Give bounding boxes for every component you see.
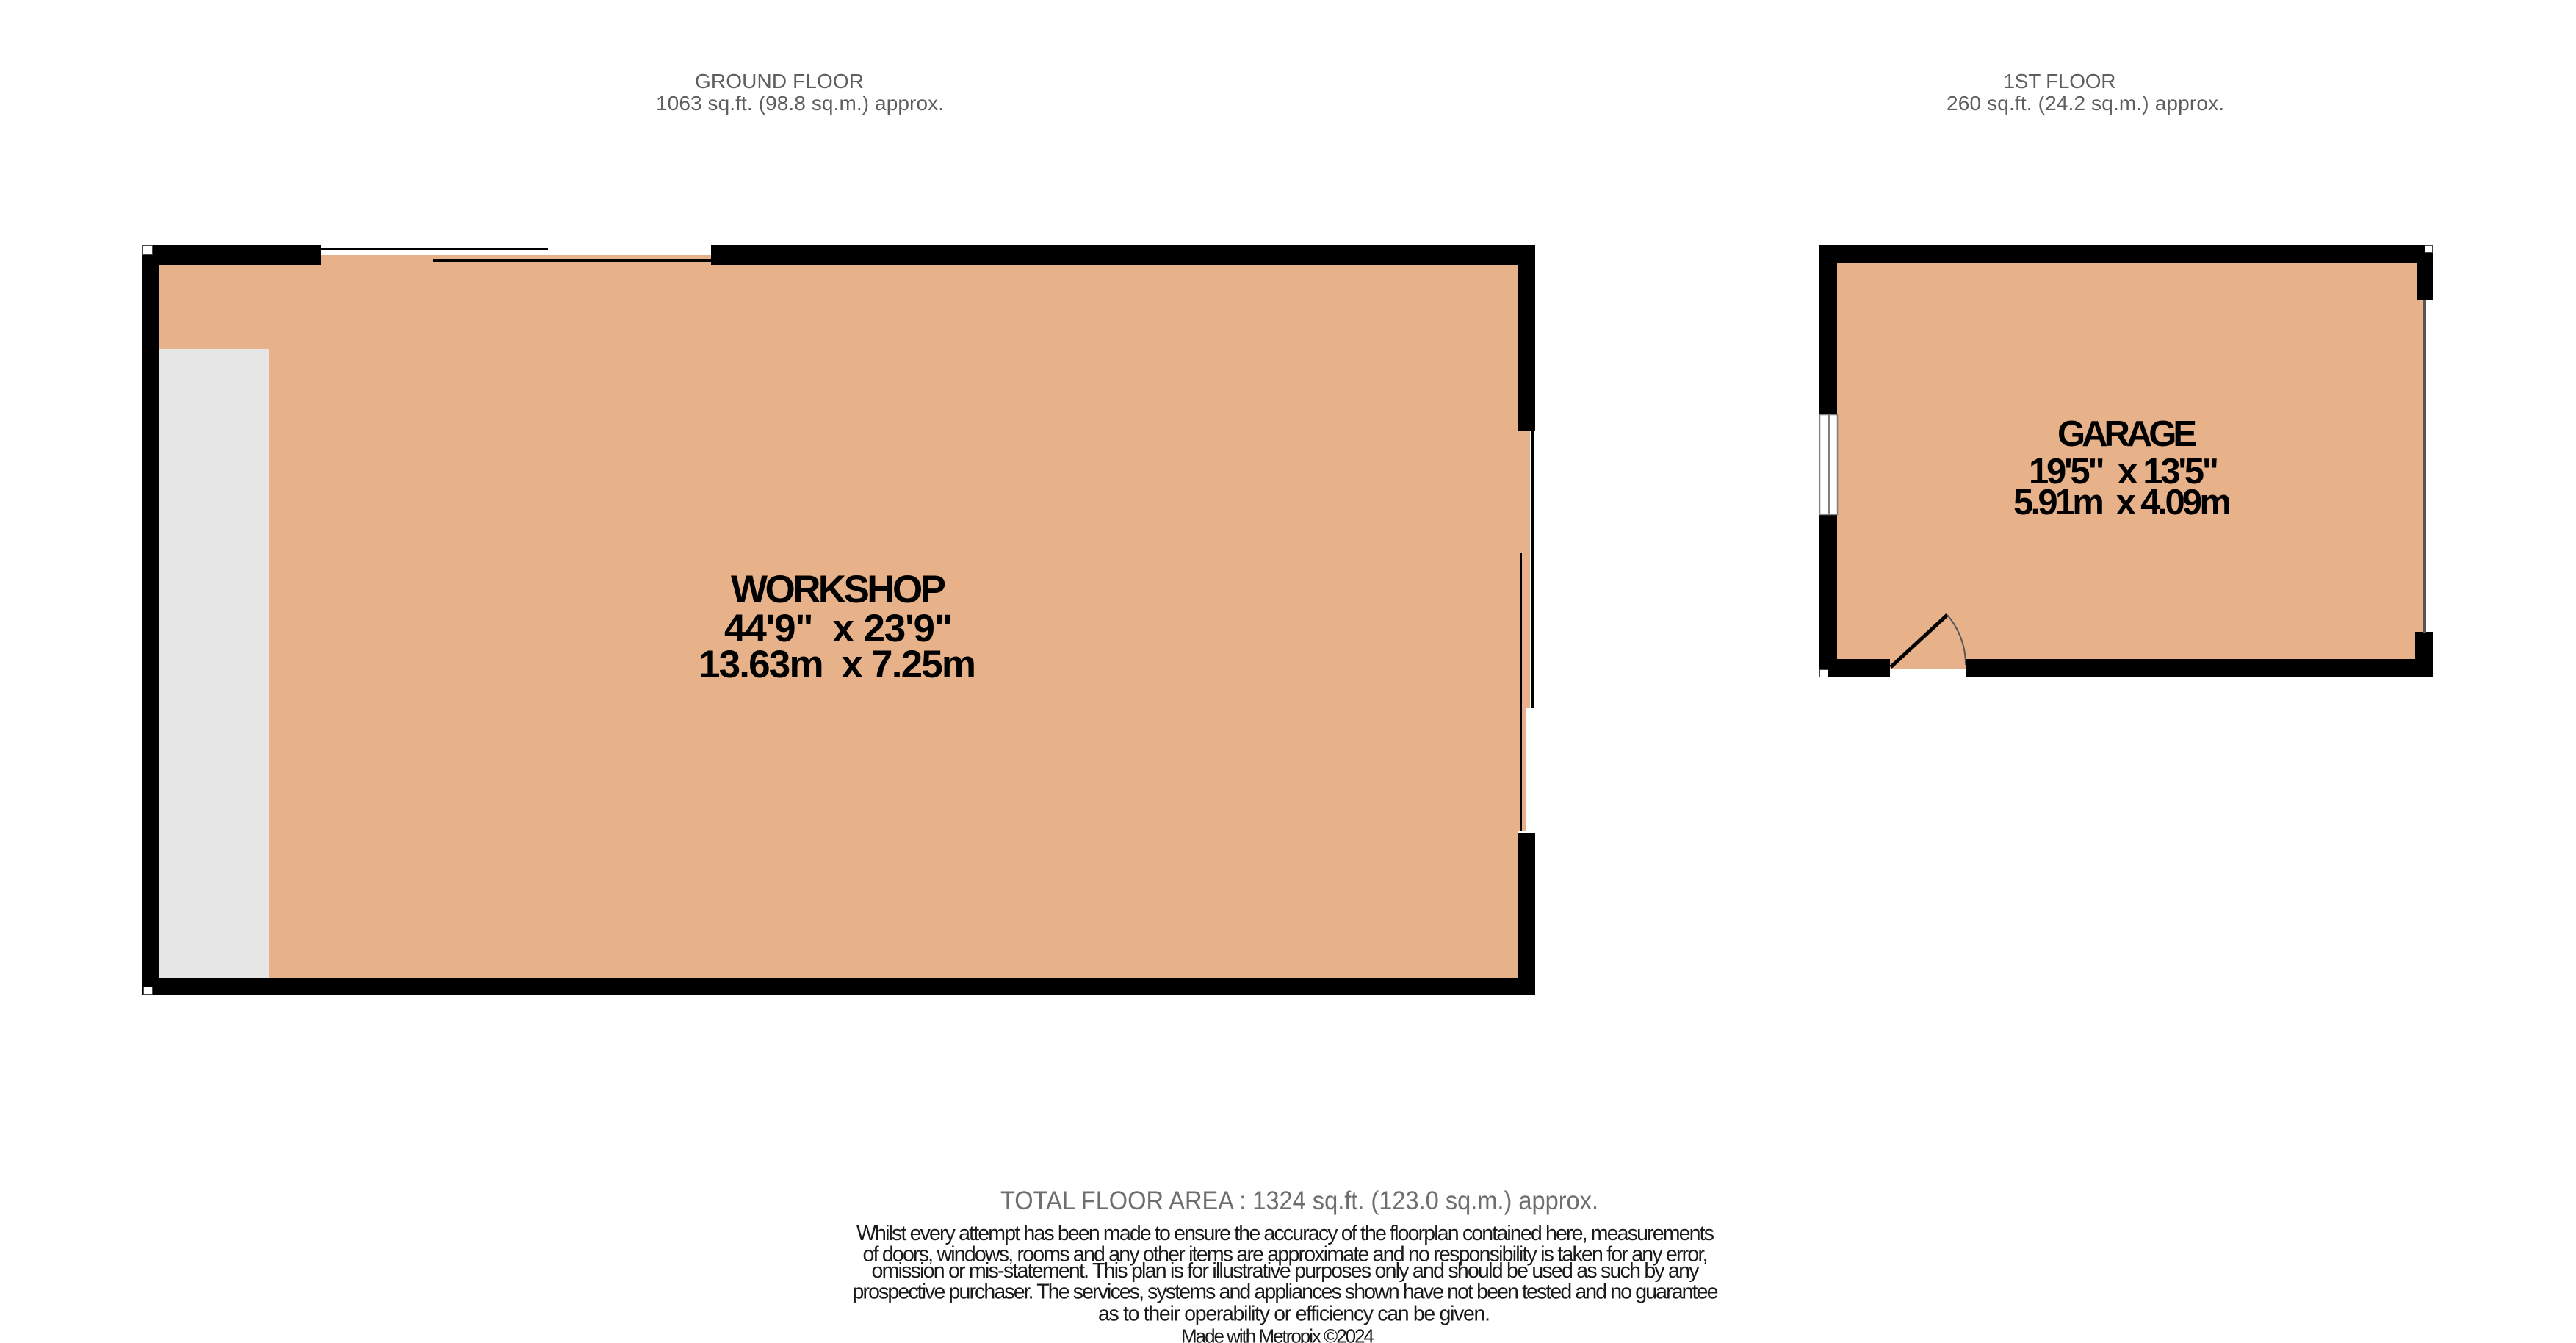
svg-text:GROUND FLOOR: GROUND FLOOR	[695, 70, 864, 93]
svg-text:GARAGE: GARAGE	[2057, 414, 2197, 454]
svg-text:as to their operability or eff: as to their operability or efficiency ca…	[1098, 1303, 1490, 1326]
svg-text:260 sq.ft. (24.2 sq.m.) approx: 260 sq.ft. (24.2 sq.m.) approx.	[1947, 92, 2224, 115]
svg-text:5.91m x 4.09m: 5.91m x 4.09m	[2013, 483, 2232, 522]
svg-text:1063 sq.ft. (98.8 sq.m.) appro: 1063 sq.ft. (98.8 sq.m.) approx.	[656, 92, 944, 115]
svg-text:prospective purchaser. The ser: prospective purchaser. The services, sys…	[853, 1281, 1719, 1304]
svg-text:1ST FLOOR: 1ST FLOOR	[2004, 70, 2116, 93]
svg-text:13.63m x 7.25m: 13.63m x 7.25m	[699, 643, 976, 686]
svg-text:TOTAL FLOOR AREA : 1324 sq.ft.: TOTAL FLOOR AREA : 1324 sq.ft. (123.0 sq…	[1000, 1187, 1598, 1215]
svg-text:Made with Metropix ©2024: Made with Metropix ©2024	[1181, 1325, 1374, 1343]
svg-text:omission or mis-statement. Thi: omission or mis-statement. This plan is …	[872, 1259, 1700, 1283]
svg-text:WORKSHOP: WORKSHOP	[731, 568, 946, 611]
svg-text:Whilst every attempt has been: Whilst every attempt has been made to en…	[856, 1222, 1714, 1245]
